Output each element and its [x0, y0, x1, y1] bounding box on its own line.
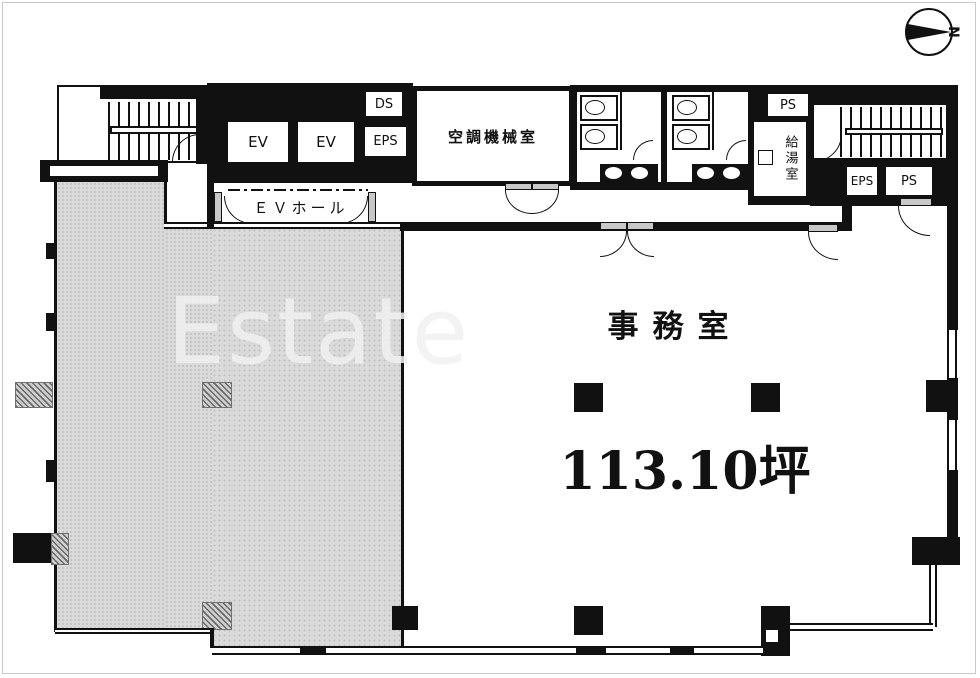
window-wall — [55, 628, 212, 634]
ps-top-label: PS — [780, 98, 796, 113]
corner-column — [912, 537, 960, 565]
stall-partition — [620, 92, 622, 150]
ds-label: DS — [375, 97, 393, 112]
wall-mullion — [46, 313, 55, 331]
door-panel — [505, 183, 532, 190]
elevator-1: EV — [226, 120, 290, 164]
window-slit — [766, 630, 778, 642]
door-panel — [214, 192, 222, 222]
door-arc — [633, 140, 653, 160]
hatched-column — [51, 533, 69, 565]
ev-hall-boundary-line — [228, 189, 368, 191]
window-wall — [164, 222, 404, 229]
right-exterior-wall — [947, 85, 958, 330]
window-wall — [947, 330, 957, 378]
watermark-text: Estate — [167, 284, 507, 380]
kitchenette-label-wrap: 給湯室 — [778, 124, 802, 194]
stair-handrail — [110, 126, 206, 134]
compass-north-label-wrap: N — [943, 23, 963, 41]
toilet-fixture — [580, 95, 618, 121]
watermark-label: Estate — [167, 278, 470, 385]
hatched-column — [15, 382, 53, 408]
elevator-2: EV — [296, 120, 356, 164]
eps-shaft-core: EPS — [363, 125, 408, 158]
right-exterior-wall — [947, 470, 958, 540]
compass-north-label: N — [945, 26, 961, 38]
wall-segment — [848, 196, 950, 205]
window-wall — [947, 420, 957, 470]
ps-shaft-right: PS — [884, 165, 934, 197]
stair-handrail — [845, 128, 943, 135]
restroom-1 — [577, 92, 661, 182]
toilet-fixture — [672, 124, 710, 150]
wall-mullion — [46, 460, 55, 482]
column — [392, 606, 418, 630]
door-panel — [600, 222, 627, 230]
wall-mullion — [46, 243, 55, 259]
wall-segment — [210, 628, 214, 648]
door-panel — [808, 224, 838, 232]
wall-mullion — [670, 646, 694, 655]
door-panel — [368, 192, 376, 222]
door-panel — [532, 183, 559, 190]
column — [574, 606, 603, 635]
ac-machine-room-label: 空調機械室 — [448, 126, 538, 147]
wall-mullion — [300, 646, 326, 655]
wall-segment — [207, 183, 214, 228]
wall-mullion — [576, 646, 606, 655]
door-panel — [627, 222, 654, 230]
column — [926, 380, 956, 412]
ev-hall-label: ＥＶホール — [253, 197, 348, 218]
window-wall — [929, 565, 937, 627]
ps-right-label: PS — [901, 174, 917, 189]
elevator-1-label: EV — [248, 133, 268, 151]
ps-shaft-top: PS — [766, 92, 810, 118]
hatched-column — [202, 602, 232, 630]
kitchenette-room: 給湯室 — [754, 122, 806, 196]
ds-shaft: DS — [364, 90, 404, 118]
toilet-fixture — [672, 95, 710, 121]
office-area-wrap: 113.10坪 — [515, 436, 855, 496]
stall-partition — [712, 92, 714, 150]
door-arc — [726, 140, 746, 160]
door-panel — [900, 198, 932, 206]
sink-counter — [600, 164, 658, 182]
sink-counter — [692, 164, 750, 182]
eps-right-label: EPS — [851, 174, 873, 188]
kitchen-sink — [758, 150, 773, 165]
office-name-wrap: 事務室 — [555, 303, 795, 343]
window-wall — [788, 623, 933, 631]
elevator-2-label: EV — [316, 133, 336, 151]
window-slit — [50, 166, 158, 176]
hatched-area-left — [57, 182, 165, 632]
wall-segment — [810, 85, 958, 103]
eps-core-label: EPS — [373, 134, 397, 149]
office-area-label: 113.10坪 — [559, 429, 810, 504]
corner-column — [13, 533, 51, 563]
hatched-column — [202, 382, 232, 408]
eps-shaft-right: EPS — [845, 165, 879, 197]
toilet-fixture — [580, 124, 618, 150]
ac-machine-room: 空調機械室 — [412, 86, 574, 186]
kitchenette-label: 給湯室 — [781, 135, 800, 183]
office-name-label: 事務室 — [608, 301, 743, 346]
floor-plan: EV EV DS EPS ＥＶホール 空調機械室 P — [0, 0, 980, 678]
restroom-2 — [667, 92, 759, 182]
column — [751, 383, 780, 412]
column — [574, 383, 603, 412]
